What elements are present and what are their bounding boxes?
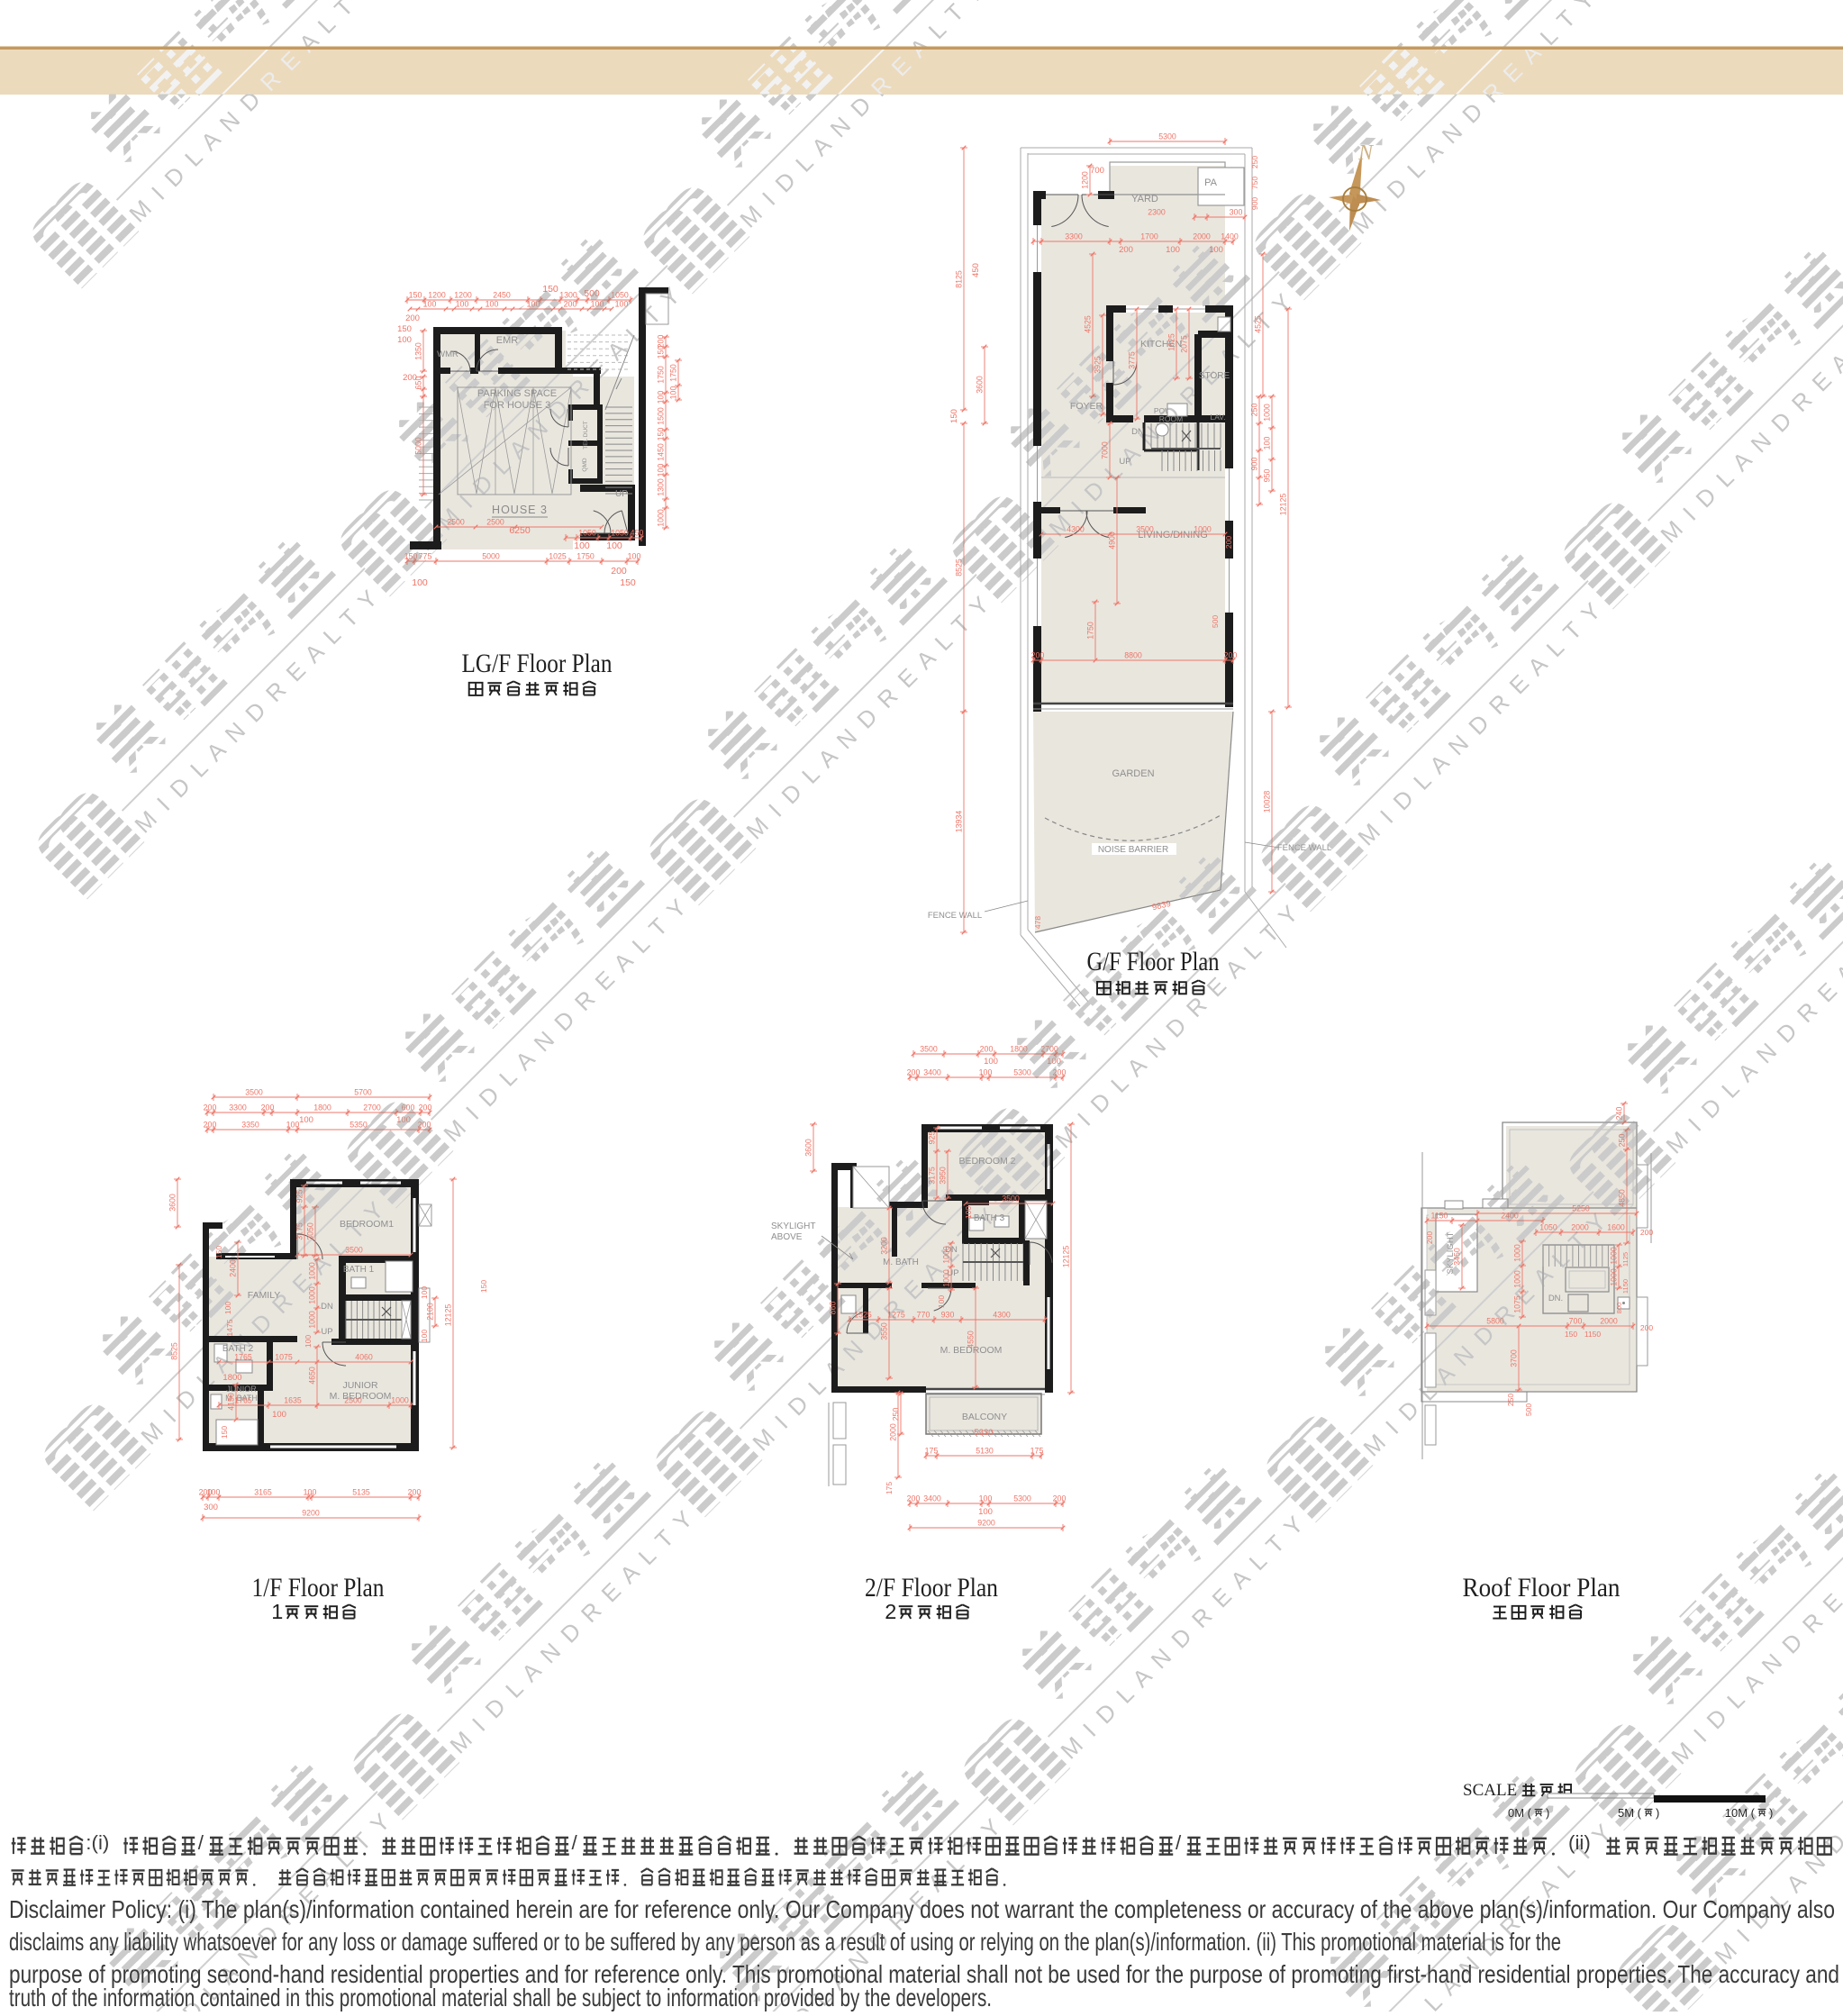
svg-text:1150: 1150 [1621, 1279, 1630, 1294]
svg-text:1/F Floor Plan: 1/F Floor Plan [252, 1573, 385, 1603]
svg-text:1500: 1500 [657, 407, 666, 425]
svg-text:1200: 1200 [428, 291, 446, 300]
svg-text:5700: 5700 [354, 1088, 372, 1097]
svg-text:LG/F Floor Plan: LG/F Floor Plan [462, 649, 613, 678]
svg-text:3300: 3300 [229, 1103, 247, 1112]
svg-text:2000: 2000 [889, 1423, 898, 1441]
svg-text:4550: 4550 [967, 1330, 976, 1349]
svg-text:200: 200 [405, 313, 420, 323]
svg-text:/: / [198, 1831, 204, 1854]
svg-text:150: 150 [1565, 1330, 1577, 1339]
svg-text:1000: 1000 [1263, 404, 1272, 422]
svg-text:SKYLIGHT: SKYLIGHT [771, 1221, 815, 1231]
svg-text:1750: 1750 [657, 366, 666, 384]
svg-text:3950: 3950 [939, 1167, 948, 1185]
svg-text:1350: 1350 [414, 342, 423, 360]
svg-text:3300: 3300 [1065, 232, 1083, 241]
svg-text:200: 200 [403, 373, 417, 383]
svg-text:2450: 2450 [493, 291, 511, 300]
svg-text:3350: 3350 [241, 1121, 259, 1130]
svg-text:2: 2 [885, 1600, 896, 1623]
svg-text:100: 100 [207, 1488, 221, 1497]
svg-text:3600: 3600 [976, 376, 985, 394]
svg-text:100: 100 [397, 335, 412, 345]
svg-text:JUNIOR: JUNIOR [342, 1380, 378, 1391]
svg-text:4060: 4060 [355, 1353, 373, 1362]
svg-text:200: 200 [419, 1103, 432, 1112]
svg-text:5300: 5300 [1013, 1068, 1031, 1077]
svg-text:10028: 10028 [1263, 791, 1272, 813]
svg-text:1000: 1000 [1513, 1244, 1522, 1262]
svg-text:100: 100 [606, 540, 622, 551]
svg-text:1125: 1125 [1621, 1252, 1630, 1267]
svg-text:12125: 12125 [1279, 494, 1288, 516]
svg-text:300: 300 [1230, 208, 1243, 217]
svg-text:): ) [1656, 1806, 1659, 1820]
svg-text:150: 150 [620, 577, 636, 588]
svg-text:200: 200 [1640, 1228, 1653, 1237]
svg-text:250: 250 [892, 1408, 901, 1421]
svg-text:100: 100 [574, 540, 590, 551]
svg-text:5130: 5130 [976, 1447, 994, 1456]
svg-text:1635: 1635 [284, 1396, 302, 1405]
svg-text:100: 100 [1263, 437, 1272, 450]
svg-text:2000: 2000 [1600, 1317, 1618, 1326]
svg-text:1150: 1150 [1584, 1330, 1602, 1339]
svg-text:900: 900 [1250, 197, 1259, 210]
svg-text:450: 450 [971, 263, 981, 277]
svg-text:/: / [1176, 1831, 1182, 1854]
svg-text:200: 200 [204, 1103, 217, 1112]
svg-text:200: 200 [1119, 245, 1133, 255]
svg-text:100: 100 [420, 1330, 429, 1342]
svg-text:3165: 3165 [254, 1488, 272, 1497]
svg-text:5300: 5300 [1013, 1494, 1031, 1503]
svg-text:5135: 5135 [352, 1488, 370, 1497]
svg-text:HOUSE 3: HOUSE 3 [492, 504, 548, 516]
svg-text:2500: 2500 [344, 1396, 362, 1405]
svg-text:200: 200 [564, 300, 577, 309]
svg-text:FENCE WALL: FENCE WALL [928, 911, 982, 921]
svg-text:1300: 1300 [559, 291, 577, 300]
svg-text:200: 200 [907, 1068, 921, 1077]
svg-text:100: 100 [412, 577, 428, 588]
svg-text:1150: 1150 [1431, 1212, 1448, 1221]
svg-text:8125: 8125 [955, 270, 964, 288]
svg-text:4300: 4300 [993, 1311, 1011, 1320]
svg-text:GARDEN: GARDEN [1112, 768, 1154, 779]
svg-text:5300: 5300 [1158, 132, 1176, 141]
svg-text:1075: 1075 [275, 1353, 293, 1362]
svg-text:QMD: QMD [582, 458, 588, 471]
svg-text:DN: DN [321, 1302, 333, 1312]
svg-text:9200: 9200 [977, 1519, 995, 1528]
svg-text:250: 250 [1250, 404, 1259, 417]
svg-text:175: 175 [1030, 1447, 1044, 1456]
svg-text:700: 700 [1090, 166, 1104, 176]
svg-text:3400: 3400 [923, 1494, 941, 1503]
svg-text:100: 100 [657, 391, 666, 404]
svg-text:100: 100 [486, 300, 499, 309]
svg-text:1400: 1400 [1221, 232, 1239, 241]
svg-text:770: 770 [917, 1311, 931, 1320]
svg-text:1625: 1625 [1167, 333, 1176, 351]
svg-text:100: 100 [456, 300, 469, 309]
svg-text:Roof Floor Plan: Roof Floor Plan [1463, 1573, 1621, 1603]
svg-text:LAV.: LAV. [1210, 413, 1225, 422]
svg-text:1750: 1750 [669, 364, 678, 382]
svg-text:1000: 1000 [657, 509, 666, 527]
svg-text:YARD: YARD [1131, 194, 1158, 204]
svg-text:100: 100 [628, 552, 641, 561]
svg-text:2100: 2100 [426, 1303, 435, 1321]
svg-text:3600: 3600 [168, 1194, 177, 1212]
svg-text:1050: 1050 [578, 529, 596, 538]
svg-text:200: 200 [907, 1494, 921, 1503]
svg-text:ABOVE: ABOVE [771, 1232, 803, 1242]
svg-text:4900: 4900 [1108, 531, 1117, 549]
svg-text:200: 200 [408, 1488, 422, 1497]
svg-text:3400: 3400 [923, 1068, 941, 1077]
svg-text:1000: 1000 [308, 1311, 317, 1329]
svg-text:9200: 9200 [302, 1509, 320, 1518]
svg-text:TEL DUCT: TEL DUCT [583, 421, 589, 450]
svg-text:3500: 3500 [920, 1045, 938, 1054]
svg-text:1750: 1750 [1086, 622, 1095, 640]
svg-text:BALCONY: BALCONY [962, 1412, 1007, 1422]
svg-text:200: 200 [1031, 651, 1045, 660]
svg-text:1000: 1000 [1194, 525, 1212, 534]
svg-text:150: 150 [409, 291, 422, 300]
svg-text:NOISE BARRIER: NOISE BARRIER [1098, 845, 1168, 855]
svg-text:100: 100 [979, 1494, 993, 1503]
svg-text:100: 100 [984, 1057, 998, 1067]
svg-text:1000: 1000 [1610, 1247, 1619, 1265]
svg-text:EMR: EMR [496, 335, 519, 346]
svg-text:200: 200 [1224, 536, 1233, 549]
svg-text:1765: 1765 [234, 1396, 252, 1405]
svg-text:12125: 12125 [444, 1304, 453, 1327]
svg-text:1000: 1000 [391, 1396, 409, 1405]
svg-text:100: 100 [299, 1115, 313, 1125]
svg-text:PA: PA [1204, 177, 1218, 188]
svg-text:150: 150 [949, 409, 959, 423]
svg-text:1300: 1300 [657, 478, 666, 496]
svg-text:200: 200 [1053, 1494, 1067, 1503]
svg-text:100: 100 [978, 1507, 993, 1517]
svg-text:13934: 13934 [955, 811, 964, 833]
svg-text:100: 100 [423, 300, 437, 309]
svg-text:200: 200 [1224, 651, 1238, 660]
svg-text:700: 700 [1569, 1317, 1583, 1326]
svg-text:5000: 5000 [482, 552, 500, 561]
svg-text:200: 200 [611, 566, 627, 577]
svg-text:100: 100 [304, 1335, 313, 1348]
svg-text:2300: 2300 [1148, 208, 1166, 217]
svg-text:2000: 2000 [1193, 232, 1211, 241]
svg-text:1750: 1750 [577, 552, 595, 561]
svg-text:100: 100 [657, 464, 666, 477]
svg-text:100: 100 [669, 386, 678, 400]
svg-text:450: 450 [631, 529, 644, 538]
svg-text:3500: 3500 [1136, 525, 1154, 534]
svg-text:6250: 6250 [509, 525, 531, 536]
svg-text:3700: 3700 [1510, 1349, 1519, 1367]
svg-text:150: 150 [657, 346, 666, 359]
svg-text:2500: 2500 [486, 518, 504, 527]
svg-text:WMR: WMR [437, 350, 458, 359]
svg-text:1050: 1050 [611, 529, 629, 538]
svg-text:100: 100 [979, 1068, 993, 1077]
svg-text:500: 500 [1524, 1403, 1533, 1416]
svg-text:BATH 1: BATH 1 [343, 1265, 375, 1275]
svg-text:150: 150 [657, 428, 666, 441]
svg-text:1000: 1000 [1610, 1268, 1619, 1286]
svg-text:300: 300 [204, 1503, 218, 1512]
svg-text:150: 150 [220, 1426, 229, 1439]
svg-text:3600: 3600 [804, 1139, 813, 1157]
svg-text:800: 800 [1615, 1303, 1623, 1314]
svg-text:8800: 8800 [1124, 651, 1142, 660]
svg-text:478: 478 [1033, 916, 1042, 929]
svg-text:1700: 1700 [1140, 232, 1158, 241]
svg-text:12125: 12125 [1062, 1246, 1071, 1268]
svg-text:5330: 5330 [974, 1428, 993, 1438]
svg-text:925: 925 [928, 1131, 937, 1145]
svg-text:1800: 1800 [313, 1103, 331, 1112]
svg-text:150: 150 [479, 1280, 488, 1293]
svg-text:950: 950 [1263, 469, 1272, 483]
svg-text:DN.: DN. [1548, 1294, 1563, 1303]
svg-text:750: 750 [1250, 177, 1259, 189]
svg-text:1200: 1200 [454, 291, 472, 300]
svg-text:200: 200 [1425, 1231, 1434, 1244]
svg-text:500: 500 [1211, 615, 1220, 628]
svg-text:2/F Floor Plan: 2/F Floor Plan [865, 1573, 998, 1603]
svg-text:250: 250 [1250, 156, 1259, 168]
svg-text:100: 100 [286, 1121, 300, 1130]
svg-text:250: 250 [1506, 1394, 1515, 1406]
svg-text:/: / [572, 1831, 578, 1854]
svg-text:3500: 3500 [245, 1088, 263, 1097]
svg-text:200: 200 [1640, 1323, 1653, 1332]
svg-text:4525: 4525 [1084, 315, 1093, 333]
svg-text:4650: 4650 [308, 1367, 317, 1385]
svg-text:100: 100 [420, 1286, 429, 1299]
svg-text:930: 930 [941, 1311, 955, 1320]
svg-text:UP: UP [321, 1327, 332, 1337]
svg-text:175: 175 [885, 1482, 894, 1494]
svg-text:1450: 1450 [657, 443, 666, 461]
svg-text:200: 200 [204, 1121, 217, 1130]
svg-text:1025: 1025 [549, 552, 567, 561]
svg-text:1200: 1200 [1081, 171, 1090, 189]
svg-text:M. BATH: M. BATH [883, 1258, 919, 1267]
svg-text:2700: 2700 [363, 1103, 381, 1112]
svg-text:JUNIOR: JUNIOR [226, 1385, 257, 1394]
svg-text:SCALE: SCALE [1463, 1781, 1517, 1800]
svg-text:100: 100 [304, 1488, 317, 1497]
svg-text:100: 100 [272, 1410, 286, 1420]
svg-text:UP: UP [615, 489, 628, 499]
svg-text:175: 175 [925, 1447, 939, 1456]
svg-text:150: 150 [397, 324, 412, 334]
svg-text:100: 100 [937, 1295, 946, 1308]
svg-text:900: 900 [1250, 458, 1259, 471]
svg-text:100: 100 [1166, 245, 1180, 255]
svg-text::(i): :(i) [86, 1831, 109, 1854]
svg-text:200: 200 [261, 1103, 275, 1112]
svg-text:200: 200 [980, 1045, 994, 1054]
svg-text:1: 1 [271, 1600, 283, 1623]
